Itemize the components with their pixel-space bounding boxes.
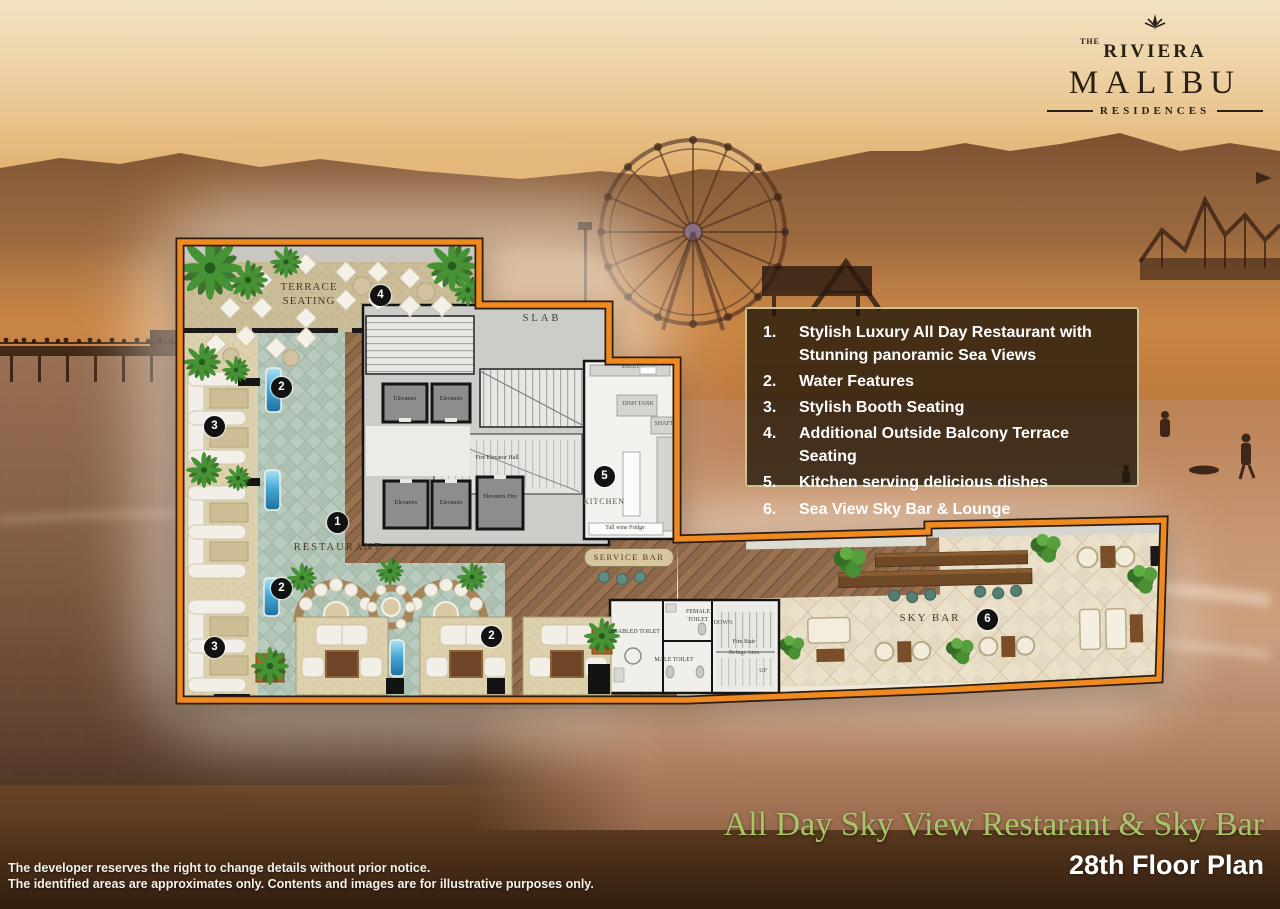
legend-num: 3. [763, 397, 799, 420]
legend-item-5: 5. Kitchen serving delicious dishes [763, 472, 1123, 495]
badge-2-water-feature-b: 2 [271, 578, 292, 599]
label-fire-elevator-hall: Fire Elevator Hall [462, 455, 532, 463]
disclaimer-line-2: The identified areas are approximates on… [8, 876, 594, 892]
logo-the: THE [1080, 37, 1100, 46]
label-elevator-fire: Elevators Fire [477, 494, 523, 502]
badge-2-water-feature-c: 2 [481, 626, 502, 647]
legend-box: 1. Stylish Luxury All Day Restaurant wit… [745, 307, 1139, 487]
logo-malibu: MALIBU [1044, 65, 1266, 102]
legend-text: Additional Outside Balcony Terrace Seati… [799, 423, 1123, 468]
label-wine-fridge: Tall wine Fridge [590, 525, 660, 533]
legend-item-4: 4. Additional Outside Balcony Terrace Se… [763, 423, 1123, 468]
legend-text: Stylish Booth Seating [799, 397, 1123, 420]
label-terrace-seating: TERRACE SEATING [266, 281, 352, 309]
legend-text: Stylish Luxury All Day Restaurant with S… [799, 322, 1123, 367]
disclaimer-line-1: The developer reserves the right to chan… [8, 860, 594, 876]
label-kitchen: KITCHEN [576, 497, 632, 507]
logo-rule-left [1047, 110, 1093, 112]
lounge-squares-graphics [296, 617, 611, 695]
label-elevator-1: Elevators [383, 396, 427, 404]
page: TERRACE SEATING SLAB RESTAURANT KITCHEN … [0, 0, 1280, 909]
label-stair-up: UP [752, 668, 774, 676]
page-title: All Day Sky View Restarant & Sky Bar [724, 806, 1264, 844]
legend-num: 1. [763, 322, 799, 367]
badge-2-water-feature-a: 2 [271, 377, 292, 398]
badge-4-terrace: 4 [370, 285, 391, 306]
kitchen-block [584, 361, 677, 539]
badge-3-booth-a: 3 [204, 416, 225, 437]
legend-text: Sea View Sky Bar & Lounge [799, 499, 1123, 522]
label-dish-tank: DISH TANK [620, 401, 656, 409]
badge-5-kitchen: 5 [594, 466, 615, 487]
label-male-toilet: MALE TOILET [650, 657, 698, 665]
logo-riviera-row: THE RIVIERA [1044, 41, 1266, 63]
disclaimer: The developer reserves the right to chan… [8, 860, 594, 893]
legend-text: Water Features [799, 371, 1123, 394]
label-service-bar: SERVICE BAR [584, 548, 674, 567]
label-shaft: SHAFT [652, 421, 676, 429]
label-sky-bar: SKY BAR [890, 612, 970, 626]
label-restaurant: RESTAURANT [288, 541, 388, 554]
legend-num: 4. [763, 423, 799, 468]
badge-6-sky-bar: 6 [977, 609, 998, 630]
logo-residences-row: RESIDENCES [1044, 105, 1266, 117]
logo-residences: RESIDENCES [1100, 105, 1210, 117]
label-refuge-area: Refuge Area [720, 650, 768, 658]
floor-plan-subtitle: 28th Floor Plan [1069, 850, 1264, 881]
legend-num: 6. [763, 499, 799, 522]
legend-item-6: 6. Sea View Sky Bar & Lounge [763, 499, 1123, 522]
legend-item-1: 1. Stylish Luxury All Day Restaurant wit… [763, 322, 1123, 367]
label-disabled-toilet: DISABLED TOILET [606, 629, 662, 637]
legend-num: 2. [763, 371, 799, 394]
badge-3-booth-b: 3 [204, 637, 225, 658]
legend-num: 5. [763, 472, 799, 495]
legend-text: Kitchen serving delicious dishes [799, 472, 1123, 495]
legend-item-2: 2. Water Features [763, 371, 1123, 394]
label-elevator-2: Elevators [432, 396, 470, 404]
logo-riviera: RIVIERA [1103, 41, 1206, 62]
brand-logo: THE RIVIERA MALIBU RESIDENCES [1044, 13, 1266, 117]
label-elevator-3: Elevators [384, 500, 428, 508]
label-slab: SLAB [512, 312, 572, 325]
logo-crest-icon [1142, 13, 1168, 35]
badge-1-restaurant: 1 [327, 512, 348, 533]
legend-item-3: 3. Stylish Booth Seating [763, 397, 1123, 420]
service-bar-stools [599, 572, 646, 585]
label-elevator-4: Elevators [432, 500, 470, 508]
label-stair-down: DOWN [708, 620, 738, 628]
logo-rule-right [1217, 110, 1263, 112]
core-block [363, 305, 609, 545]
label-fire-stair: Fire Stair [722, 639, 766, 647]
label-shelves: SHELV. [596, 364, 666, 372]
